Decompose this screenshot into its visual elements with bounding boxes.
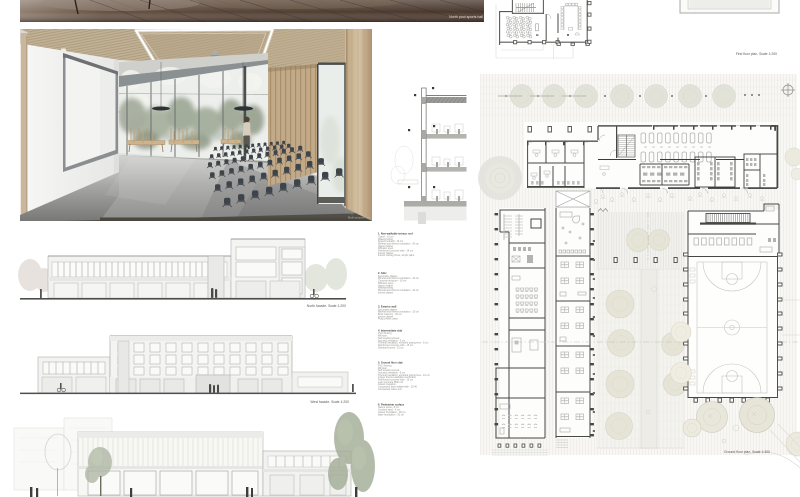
svg-text:North pool sports hall: North pool sports hall xyxy=(449,15,483,19)
svg-text:Compacted native soil: Compacted native soil xyxy=(378,388,402,391)
svg-text:Interior ceiling primer, acryl: Interior ceiling primer, acrylic paint xyxy=(378,254,414,257)
svg-text:Base foundation - 20 cm: Base foundation - 20 cm xyxy=(378,413,404,416)
svg-text:First floor plan. Scale 1:200: First floor plan. Scale 1:200 xyxy=(736,52,777,56)
svg-text:Interior plaster: Interior plaster xyxy=(378,291,393,294)
svg-text:Multi-purpose hall: Multi-purpose hall xyxy=(348,216,370,220)
svg-text:Standard bound - 10 cm: Standard bound - 10 cm xyxy=(378,346,404,349)
svg-text:Putty, primer, paint: Putty, primer, paint xyxy=(378,318,398,321)
svg-text:West facade. Scale 1:200: West facade. Scale 1:200 xyxy=(310,400,349,404)
svg-text:Ground floor plan. Scale 1:300: Ground floor plan. Scale 1:300 xyxy=(724,450,770,454)
svg-text:North facade. Scale 1:200: North facade. Scale 1:200 xyxy=(307,304,346,308)
